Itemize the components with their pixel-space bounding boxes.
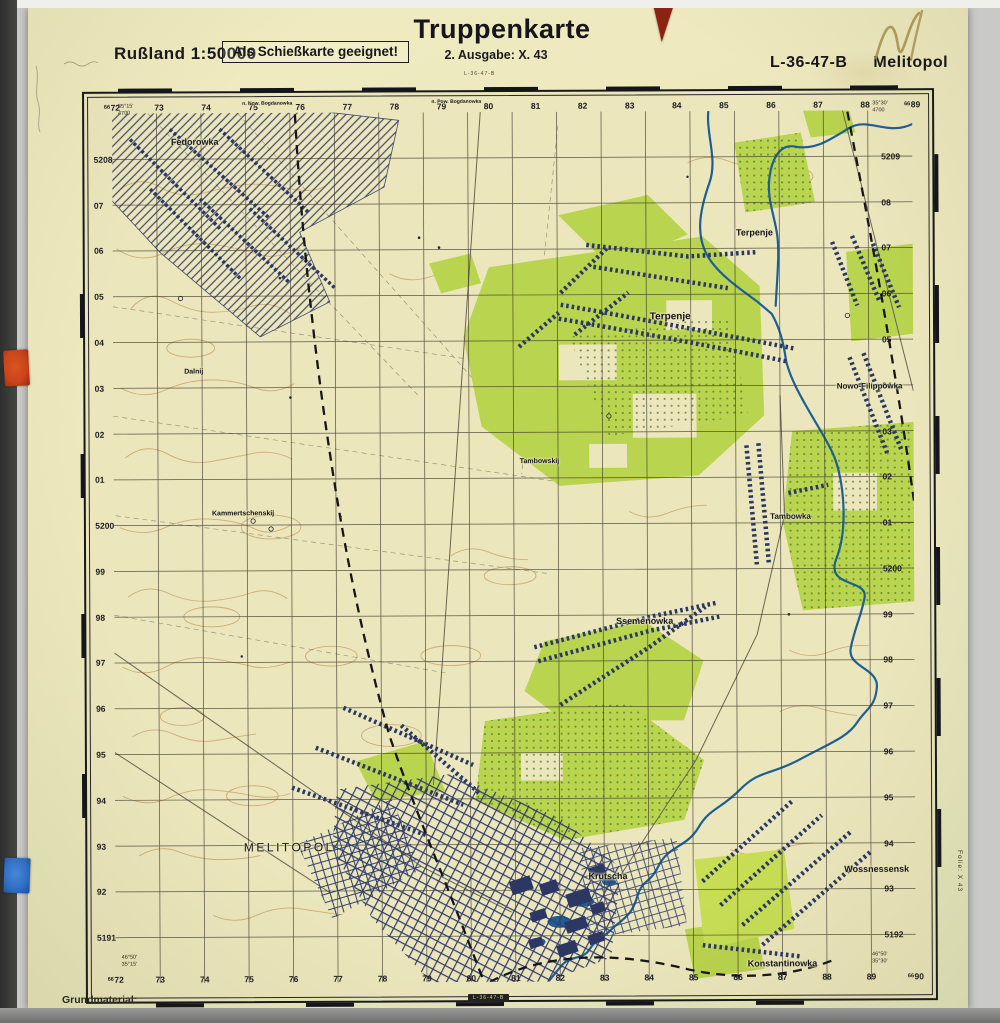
topographic-map (90, 96, 930, 995)
pencil-scribble (862, 4, 962, 66)
photo-edge-top (0, 0, 1000, 8)
map-title: Truppenkarte (396, 14, 608, 45)
sheet-number: L-36-47-B (770, 54, 847, 72)
grundmaterial-label: Grundmaterial: (62, 994, 137, 1006)
photo-edge-bottom (0, 1008, 1000, 1023)
border-scale-segments (118, 85, 898, 92)
red-triangle-mark (651, 5, 673, 42)
border-scale-segments (156, 1000, 868, 1007)
border-scale-segments (934, 154, 941, 935)
blue-index-sticker (3, 858, 30, 894)
map-frame: 6672737475767778798081828384858687886689… (82, 88, 938, 1004)
red-index-sticker (3, 349, 30, 386)
folie-note: Folie: X 43 (956, 850, 963, 892)
sheet-number-top-small: L-36-47-B (464, 71, 495, 77)
map-sheet-paper: Rußland 1:50000 Als Schießkarte geeignet… (28, 8, 968, 1010)
edition-label: 2. Ausgabe: X. 43 (396, 48, 596, 62)
sheet-number-bottom-small: L-36-47-B (468, 994, 509, 1002)
suitability-note-box: Als Schießkarte geeignet! (222, 41, 409, 63)
border-scale-segments (80, 294, 86, 839)
